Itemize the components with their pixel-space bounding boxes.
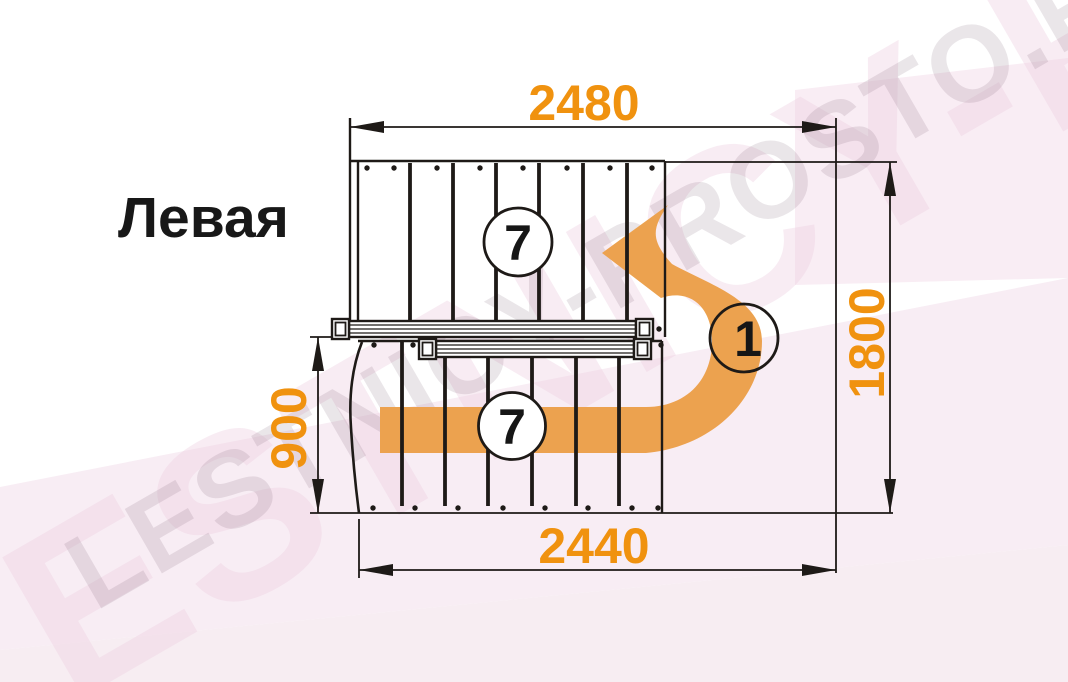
- dimension-left-value: 900: [261, 386, 317, 469]
- dimension-bottom-value: 2440: [538, 518, 649, 574]
- page-title: Левая: [118, 186, 289, 250]
- step-count-circle-upper: 7: [484, 208, 552, 276]
- step-count-circle-lower: 7: [479, 393, 546, 460]
- stair-plan-page: LESTNICY-PROSTO.RU LESTNICY-PROSTO.RU: [0, 0, 1068, 682]
- upper-flight-fastener-dots: [364, 165, 654, 170]
- stair-plan-drawing: LESTNICY-PROSTO.RU LESTNICY-PROSTO.RU: [0, 0, 1068, 682]
- dimension-top-value: 2480: [528, 75, 639, 131]
- upper-flight-step-count: 7: [504, 215, 532, 271]
- lower-flight-step-count: 7: [498, 399, 526, 455]
- landing-number: 1: [734, 311, 762, 367]
- dimension-top-arrow-left: [350, 121, 384, 133]
- dimension-right-value: 1800: [839, 287, 895, 398]
